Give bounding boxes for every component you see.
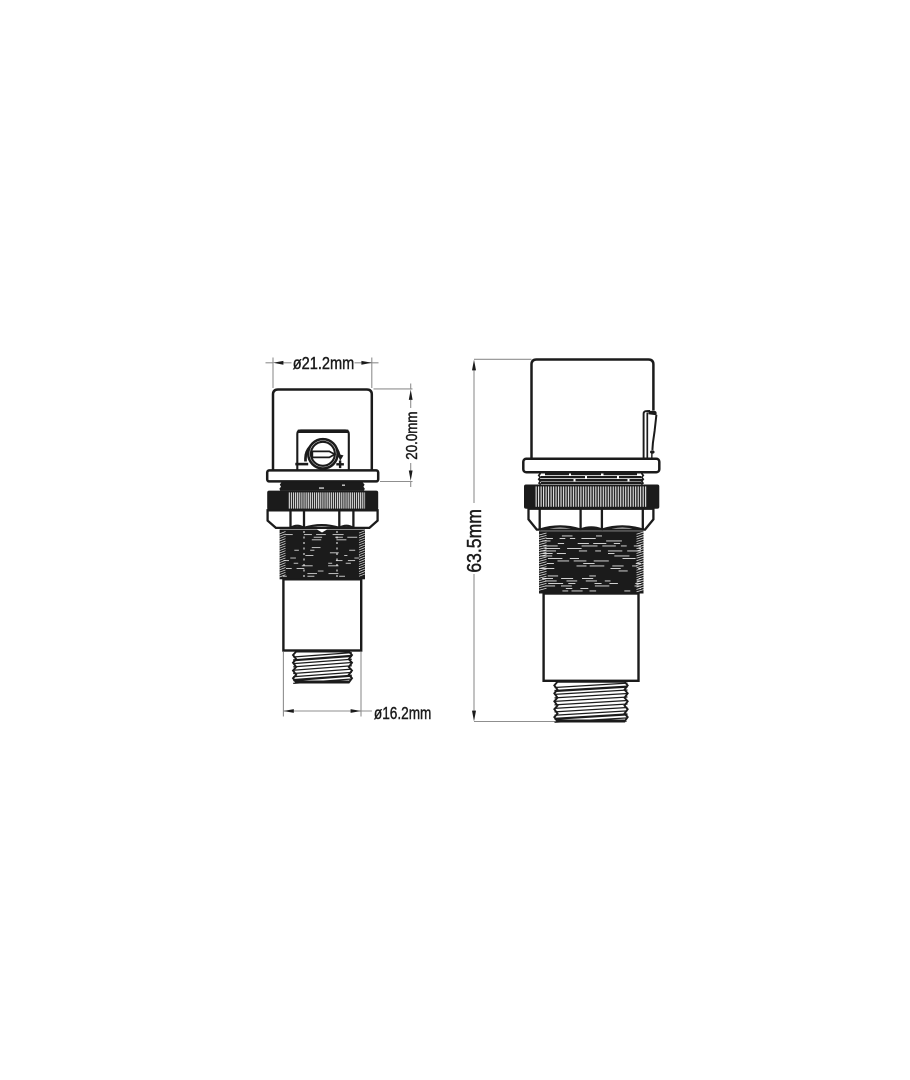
svg-text:ø21.2mm: ø21.2mm bbox=[293, 353, 355, 373]
svg-text:63.5mm: 63.5mm bbox=[464, 509, 486, 572]
svg-text:20.0mm: 20.0mm bbox=[404, 411, 421, 459]
svg-text:ø16.2mm: ø16.2mm bbox=[374, 703, 432, 723]
